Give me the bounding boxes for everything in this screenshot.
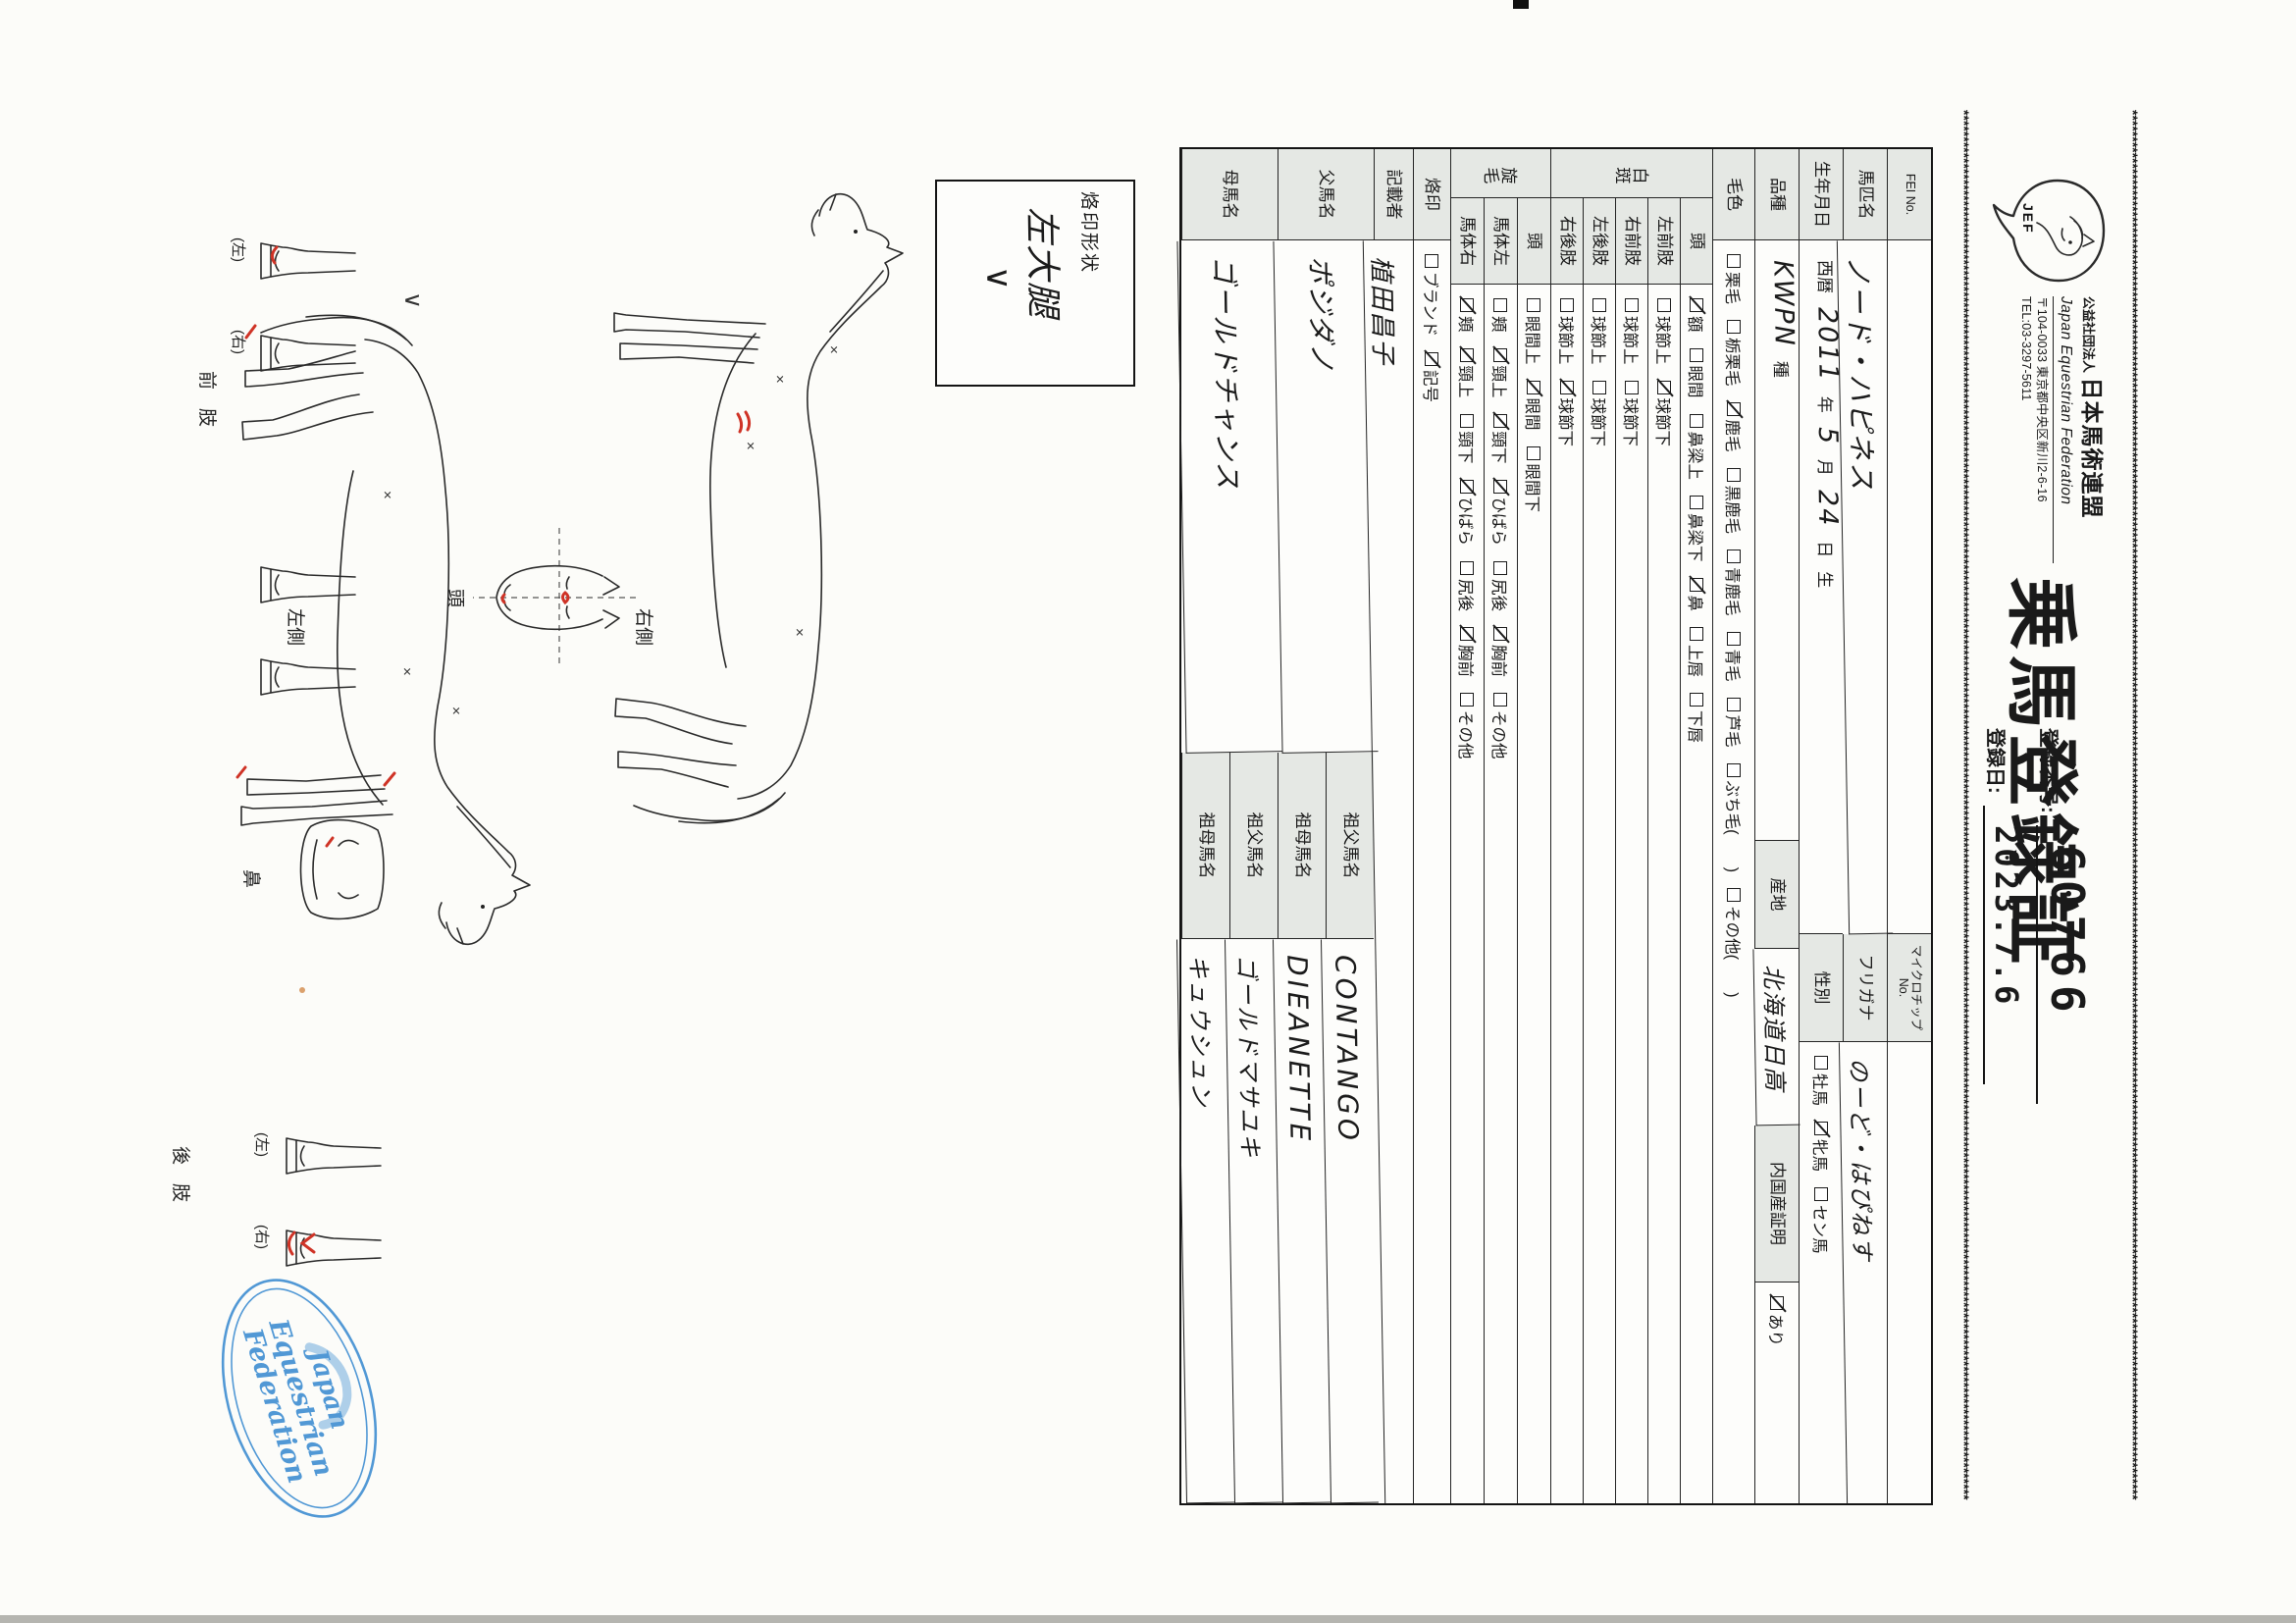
checkbox-checked [1690,578,1703,592]
checkbox-checked [1814,1122,1828,1135]
checkbox-checked [1770,1296,1784,1310]
sire-granddam-value: DIEANETTE [1273,939,1331,1504]
checkbox [1528,446,1541,460]
field-label: 品種 [1754,149,1799,240]
checkbox [1625,298,1639,312]
checkbox-option: 眼間上 [1523,298,1546,365]
registration-date-label: 登録日: [1984,728,2006,794]
checkbox-option: あり [1765,1296,1789,1346]
asterisk-border-bottom: ****************************************… [1957,110,1972,1517]
checkbox [1461,561,1475,575]
field-value: ノード・ハピネス [1837,240,1893,935]
checkbox-option: 栃栗毛 [1722,320,1746,387]
subrow-label: 頭 [1680,198,1712,285]
org-prefix: 公益社団法人 [2081,296,2096,373]
checkbox-option: ぶち毛( ) [1722,763,1746,873]
right-side-label: 右側 [633,608,654,646]
brand-shape-box: 烙印形状 左大腿 ∨ [935,180,1135,387]
checkbox-option: 鹿毛 [1722,402,1746,452]
org-address: 〒104-0033 東京都中央区新川2-6-16 [2033,296,2049,591]
checkbox [1690,627,1703,641]
checkbox-option: 鼻梁下 [1685,496,1708,562]
checkbox [1657,298,1671,312]
checkbox-checked [1461,627,1475,641]
checkbox-option: 胸前 [1456,627,1480,677]
checkbox-option: その他 [1489,693,1513,759]
hind-leg-diagrams: (左) (右) 後 肢 [170,1132,381,1266]
registration-number-label: 登録番号: [2037,728,2059,813]
checkbox-option: 眼間下 [1523,446,1546,513]
checkbox-option: 球節上 [1620,298,1644,365]
checkbox-checked [1494,414,1508,428]
checkbox-option: 球節下 [1588,381,1611,447]
checkbox [1727,763,1741,777]
checkbox-option: 尻後 [1456,561,1480,611]
head-label: 頭 [444,589,465,607]
scan-artifact-dot [299,987,305,993]
checkbox-option: 鼻 [1685,578,1708,612]
subrow-label: 左前肢 [1647,198,1680,285]
checkbox-checked [1690,298,1703,312]
checkbox-option: 球節下 [1555,381,1579,447]
checkbox-checked [1494,348,1508,362]
checkbox-option: ブランド [1421,254,1444,337]
checkbox-option: 眼間 [1685,348,1708,398]
checkbox-option: 青鹿毛 [1722,550,1746,616]
org-tel: TEL:03-3297-5611 [2018,296,2034,591]
checkbox-option: 球節上 [1555,298,1579,365]
checkbox-option: ひばら [1456,480,1480,547]
checkbox [1461,693,1475,707]
checkbox-option: 頬 [1489,298,1513,333]
checkbox-option: 頸上 [1456,348,1480,398]
checkbox-option: その他( ) [1722,888,1746,998]
field-value [1887,240,1931,934]
federation-stamp: Japan Equestrian Federation [206,1266,392,1531]
checkbox [1461,414,1475,428]
svg-text:×: × [791,628,808,637]
subrow-options: 額眼間鼻梁上鼻梁下鼻上唇下唇 [1680,285,1712,1503]
jef-logo: JEF [1990,172,2110,289]
red-mark-hindleg [246,326,255,338]
red-mark-hind-right-coronet [302,1234,314,1252]
checkbox-option: 鼻梁上 [1685,414,1708,481]
granddam-label: 祖母馬名 [1278,753,1326,939]
sire-grandsire-value: CONTANGO [1321,939,1379,1504]
field-label: 内国産証明 [1754,1126,1799,1283]
subrow-label: 右前肢 [1615,198,1647,285]
letterhead-rule [2053,296,2054,563]
checkbox-option: 胸前 [1489,627,1513,677]
hind-left-paren: (左) [253,1132,270,1157]
group-label: 白斑 [1550,149,1712,198]
field-value [1887,1042,1931,1503]
checkbox [1494,298,1508,312]
thigh-brand-mark: ∨ [399,291,427,311]
scan-artifact [1513,0,1529,9]
field-label: 産地 [1754,841,1799,949]
subrow-label: 左後肢 [1583,198,1615,285]
checkbox-option: 牝馬 [1809,1122,1833,1172]
grandsire-label: 祖父馬名 [1229,753,1278,939]
checkbox-option: 眼間 [1523,381,1546,431]
field-value: のーど・はぴねす [1839,1042,1891,1504]
field-label: 記載者 [1374,149,1413,240]
certificate-page: ****************************************… [0,0,2296,1623]
subrow-label: 馬体右 [1450,198,1484,285]
registration-number-value: 60766 [2036,825,2094,1104]
checkbox [1727,320,1741,334]
subrow-options: 頬頸上頸下ひばら尻後胸前その他 [1450,285,1484,1503]
field-label: 烙印 [1413,149,1450,240]
checkbox-option: 頸下 [1456,414,1480,464]
checkbox-option: 球節上 [1652,298,1676,365]
field-label: 毛色 [1712,149,1754,240]
checkbox-option: 黒鹿毛 [1722,468,1746,535]
breed-value: KWPN種 [1754,240,1799,841]
checkbox [1727,632,1741,646]
checkbox-option: 尻後 [1489,561,1513,611]
checkbox-checked [1657,381,1671,394]
dam-granddam-value: キュウシュン [1176,939,1234,1504]
hind-right-paren: (右) [253,1225,270,1249]
logo-text: JEF [2020,203,2036,235]
registration-date-line: 登録日: 2023.7.6 [1983,728,2025,1084]
checkbox-option: 上唇 [1685,627,1708,677]
checkbox-option: 頸下 [1489,414,1513,464]
checkbox-checked [1461,298,1475,312]
front-right-paren: (右) [230,330,246,354]
checkbox [1592,298,1606,312]
brand-shape-label: 烙印形状 [1077,191,1104,385]
checkbox-checked [1494,627,1508,641]
subrow-options: 球節上球節下 [1583,285,1615,1503]
checkbox-option: 下唇 [1685,693,1708,743]
field-label: マイクロチップNo. [1887,934,1931,1042]
checkbox [1426,254,1439,268]
subrow-options: 球節上球節下 [1550,285,1583,1503]
dam-grandsire-value: ゴールドマサユキ [1225,939,1282,1504]
horse-right-side-view: × × × × [614,194,903,823]
field-label: FEI No. [1887,149,1931,240]
granddam-label: 祖母馬名 [1181,753,1229,939]
red-mark-neck [738,412,750,432]
checkbox-checked [1560,381,1574,394]
checkbox [1690,693,1703,707]
group-label: 旋毛 [1450,149,1550,198]
checkbox-checked [1494,480,1508,494]
red-mark-nose [502,595,504,602]
hind-leg-label: 後 肢 [170,1146,191,1202]
checkbox [1727,468,1741,482]
grandsire-label: 祖父馬名 [1326,753,1374,939]
horse-left-side-view: × × × ∨ [237,291,530,944]
checkbox-option: ひばら [1489,480,1513,547]
sire-label: 父馬名 [1278,149,1374,240]
checkbox-option: 球節上 [1588,298,1611,365]
checkbox-checked [1461,348,1475,362]
svg-text:×: × [771,375,788,384]
checkbox [1494,561,1508,575]
org-name-en: Japan Equestrian Federation [2057,296,2075,591]
subrow-options: 球節上球節下 [1647,285,1680,1503]
checkbox-option: 記号 [1421,352,1444,402]
brand-location-value: 左大腿 [1018,207,1072,386]
nose-label: 鼻 [240,869,262,888]
horse-diagram: × × × × 右側 × × × ∨ 左側 頭 [69,118,932,1521]
dam-label: 母馬名 [1181,149,1278,240]
checkbox [1592,381,1606,394]
checkbox [1727,698,1741,711]
svg-text:×: × [398,667,415,676]
checkbox [1528,298,1541,312]
subrow-options: 球節上球節下 [1615,285,1647,1503]
muzzle-view [301,820,385,919]
checkbox-checked [1727,402,1741,416]
subrow-label: 頭 [1517,198,1550,285]
checkbox [1690,496,1703,509]
svg-text:×: × [447,707,464,715]
checkbox-checked [1528,381,1541,394]
subrow-options: 眼間上眼間眼間下 [1517,285,1550,1503]
scan-edge-shadow [0,1615,2296,1623]
org-name: 日本馬術連盟 [2079,377,2105,518]
domestic-proof-options: あり [1754,1283,1799,1503]
registration-date-value: 2023.7.6 [1983,806,2025,1084]
dam-value: ゴールドチャンス [1176,239,1281,754]
checkbox [1727,254,1741,268]
checkbox [1727,888,1741,902]
birthdate-value: 西暦2011年5月24日生 [1799,240,1843,934]
horse-data-table: FEI No.マイクロチップNo.馬匹名ノード・ハピネスフリガナのーど・はぴねす… [1179,147,1933,1505]
checkbox [1727,550,1741,563]
checkbox [1814,1056,1828,1070]
svg-text:×: × [379,491,395,499]
field-label: 馬匹名 [1843,149,1887,240]
sire-value: ポジダノ [1273,239,1378,754]
checkbox [1814,1187,1828,1201]
checkbox-option: 青毛 [1722,632,1746,682]
checkbox-option: その他 [1456,693,1480,759]
checkbox-option: 球節下 [1620,381,1644,447]
checkbox-option: 芦毛 [1722,698,1746,748]
checkbox-option: 頬 [1456,298,1480,333]
checkbox-checked [1426,352,1439,366]
left-side-label: 左側 [285,608,306,646]
checkbox [1494,693,1508,707]
registration-number-line: 登録番号: 60766 [2036,728,2094,1104]
red-mark-hind-right-hoof [288,1232,294,1254]
front-left-paren: (左) [230,237,246,262]
field-options: 栗毛栃栗毛鹿毛黒鹿毛青鹿毛青毛芦毛ぶち毛( )その他( ) [1712,240,1754,1503]
subrow-label: 馬体左 [1484,198,1517,285]
svg-text:×: × [825,345,842,354]
checkbox-option: セン馬 [1809,1187,1833,1254]
checkbox-option: 額 [1685,298,1708,333]
subrow-options: 頬頸上頸下ひばら尻後胸前その他 [1484,285,1517,1503]
logo-horse-head-icon [2037,217,2094,255]
front-leg-diagrams: (左) (右) 前 肢 [196,237,355,695]
checkbox [1690,348,1703,362]
front-leg-label: 前 肢 [196,371,218,427]
sex-options: 牡馬牝馬セン馬 [1799,1042,1843,1503]
brand-mark-value: ∨ [978,266,1019,386]
checkbox-option: 球節下 [1652,381,1676,447]
checkbox [1560,298,1574,312]
red-mark-muzzle [327,838,333,846]
checkbox [1625,381,1639,394]
letterhead: 公益社団法人 日本馬術連盟 Japan Equestrian Federatio… [2018,296,2106,591]
field-label: フリガナ [1843,934,1887,1042]
field-label: 生年月日 [1799,149,1843,240]
checkbox-checked [1461,480,1475,494]
checkbox-option: 頸上 [1489,348,1513,398]
checkbox-option: 牡馬 [1809,1056,1833,1106]
field-label: 性別 [1799,934,1843,1042]
svg-text:×: × [742,442,758,450]
subrow-label: 右後肢 [1550,198,1583,285]
asterisk-border-top: ****************************************… [2125,110,2141,1517]
checkbox [1690,414,1703,428]
head-front-view [473,528,636,667]
origin-value: 北海道日高 [1752,949,1800,1126]
checkbox-option: 栗毛 [1722,254,1746,304]
